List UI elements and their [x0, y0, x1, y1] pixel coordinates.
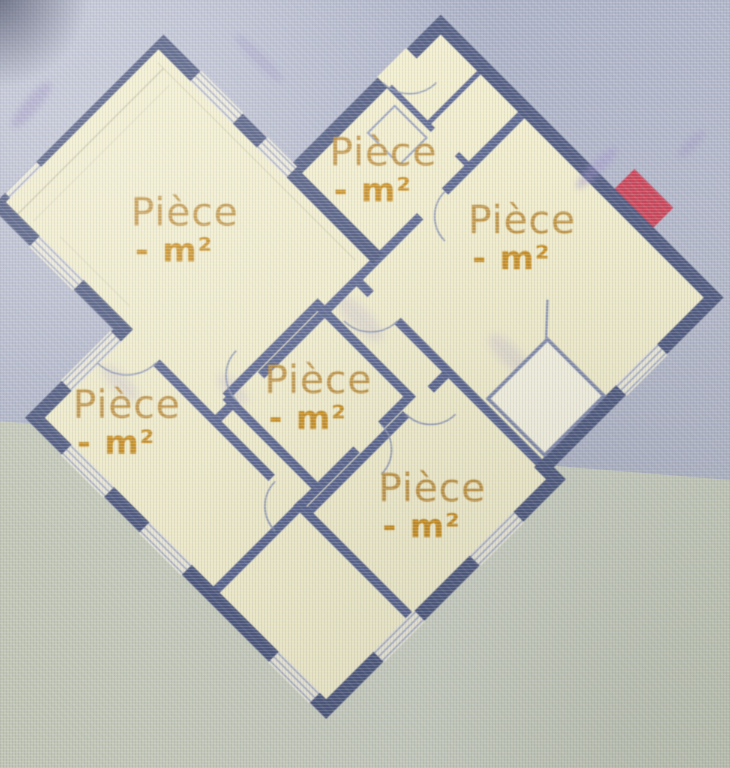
room-label-bottom-left: Pièce: [73, 383, 181, 428]
room-area-bottom: - m²: [383, 506, 461, 545]
room-label-top-left: Pièce: [131, 190, 239, 235]
room-label-bottom: Pièce: [378, 466, 486, 511]
room-label-center: Pièce: [264, 358, 372, 403]
room-area-right: - m²: [472, 238, 550, 277]
floor-plan-photo: Pièce - m² Pièce - m² Pièce - m² Pièce -…: [0, 0, 730, 768]
room-area-center: - m²: [269, 398, 347, 437]
room-label-right: Pièce: [468, 198, 576, 243]
room-area-top-center: - m²: [334, 170, 412, 209]
room-area-top-left: - m²: [135, 230, 213, 269]
room-area-bottom-left: - m²: [77, 423, 155, 462]
room-label-top-center: Pièce: [329, 130, 437, 175]
